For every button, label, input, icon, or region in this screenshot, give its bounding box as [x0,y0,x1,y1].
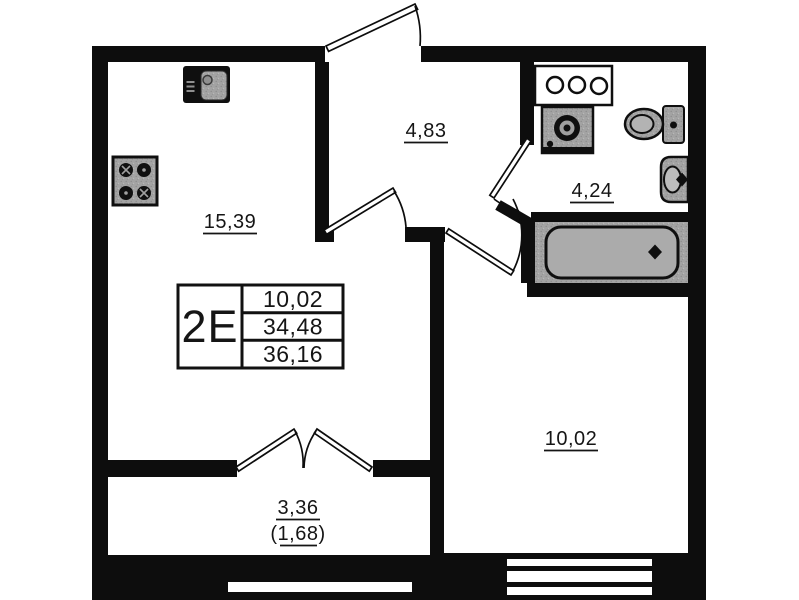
paper-background [0,0,799,600]
wall-tub-niche-left [521,222,535,283]
counter-hole [591,78,607,94]
counter-hole [547,77,563,93]
kitchen-faucet-detail [187,86,195,88]
toilet-tank-button [670,122,677,129]
unit-type-label: 2E [181,301,238,352]
toilet-bowl-inner [631,115,654,133]
kitchen-faucet-detail [187,90,195,92]
washing-machine-base [542,147,593,153]
hall-area-label: 4,83 [406,120,447,142]
wall-bedroom-left [430,232,444,556]
washing-machine [542,107,593,153]
bathroom-area-label: 4,24 [572,180,613,202]
wall-bath-bedroom [527,283,706,297]
bathtub [535,222,688,283]
balcony-reduced-area-label: (1,68) [270,523,325,545]
table-value-row2: 34,48 [263,314,323,340]
balcony-area-label: 3,36 [278,497,319,519]
counter-hole [569,77,585,93]
bedroom-window-pane-3 [507,587,652,595]
wall-top-right [421,46,706,62]
unit-info-table: 2E 10,02 34,48 36,16 [178,285,343,368]
toilet [625,106,684,143]
burner-dot [124,191,128,195]
washing-machine-knob [547,141,553,147]
bedroom-window-pane-1 [507,559,652,566]
wall-left [92,46,108,575]
floorplan-page: 2E 10,02 34,48 36,16 15,39 4,83 4,24 10,… [0,0,799,600]
bathroom-counter [535,66,612,105]
washbasin [661,157,688,202]
kitchen-living-area-label: 15,39 [204,211,257,233]
stove [113,157,157,205]
bedroom-window-pane-2 [507,571,652,582]
wall-bathroom-left [520,62,534,145]
kitchen-sink-basin [201,71,227,100]
wall-living-bottom-left [108,460,237,477]
kitchen-sink [183,66,230,103]
kitchen-faucet-detail [187,81,195,83]
wall-living-hall-partition [315,62,329,228]
floorplan-drawing: 2E 10,02 34,48 36,16 15,39 4,83 4,24 10,… [0,0,799,600]
wall-top-left [92,46,325,62]
wall-right [688,46,706,600]
bedroom-area-label: 10,02 [545,428,598,450]
stove-body [113,157,157,205]
wall-balcony-bottom [108,555,443,600]
washing-machine-door-center [564,125,571,132]
burner-dot [142,168,146,172]
balcony-window [228,582,412,592]
table-value-row3: 36,16 [263,341,323,367]
wall-tub-ledge [531,212,688,222]
table-value-row1: 10,02 [263,286,323,312]
kitchen-sink-drain [203,76,212,85]
